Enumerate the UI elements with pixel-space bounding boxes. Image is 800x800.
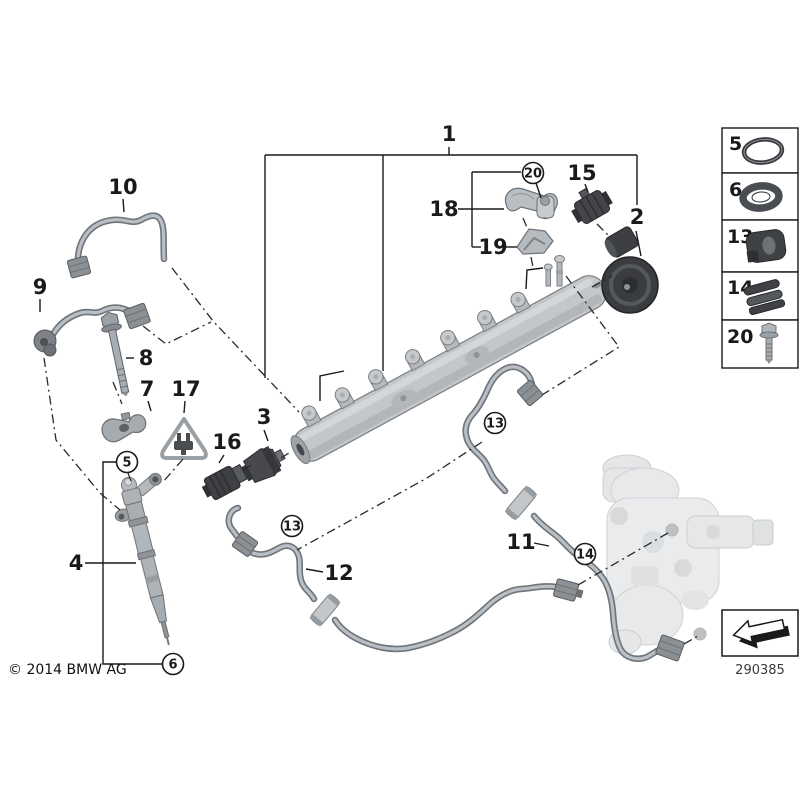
callout-13-circled-left[interactable]: 13: [282, 516, 303, 537]
warning-triangle-17: [162, 419, 206, 458]
callout-6-circled[interactable]: 6: [163, 654, 184, 675]
svg-text:13: 13: [486, 417, 504, 432]
legend-number-20: 20: [727, 326, 753, 348]
pressure-pipe-10: [67, 216, 164, 279]
callout-15[interactable]: 15: [567, 161, 596, 185]
pressure-pipe-9: [34, 303, 151, 356]
legend-number-5: 5: [729, 133, 742, 155]
callout-10[interactable]: 10: [108, 175, 137, 199]
callout-9[interactable]: 9: [33, 275, 48, 299]
pump-lower-port: [694, 628, 706, 640]
svg-text:14: 14: [576, 548, 594, 563]
clamp-screw-20: [541, 197, 550, 206]
view-direction-box: [722, 610, 798, 656]
callout-1[interactable]: 1: [442, 122, 457, 146]
legend-sidebar: 5 6 13 14: [722, 128, 798, 368]
legend-item-14[interactable]: 14: [722, 272, 798, 320]
diagram-code: 290385: [735, 663, 785, 678]
clamp-19: [517, 229, 553, 254]
callout-18[interactable]: 18: [429, 197, 458, 221]
svg-text:13: 13: [283, 520, 301, 535]
callout-17[interactable]: 17: [171, 377, 200, 401]
sensor-3: [238, 441, 290, 488]
pipe-11-nut-upper: [517, 380, 544, 407]
fuel-rail: [278, 254, 612, 468]
rail-pressure-sensor: [565, 181, 615, 228]
callout-4[interactable]: 4: [69, 551, 84, 575]
parts-diagram-page: 1 2 3 4 7 8 9 10 11 12 15 16 17 18 19 5 …: [0, 0, 800, 800]
callout-19[interactable]: 19: [478, 235, 507, 259]
copyright-text: © 2014 BMW AG: [8, 662, 127, 678]
rail-outlet-nipples: [544, 256, 564, 287]
legend-item-13[interactable]: 13: [722, 220, 798, 272]
svg-text:6: 6: [168, 658, 177, 673]
legend-item-6[interactable]: 6: [722, 173, 798, 220]
callout-20-circled[interactable]: 20: [523, 163, 544, 184]
callout-7[interactable]: 7: [140, 377, 155, 401]
callout-13-circled-right[interactable]: 13: [485, 413, 506, 434]
callout-5-circled[interactable]: 5: [117, 452, 138, 473]
clamp-18: [505, 188, 557, 218]
callout-16[interactable]: 16: [212, 430, 241, 454]
legend-item-20[interactable]: 20: [722, 320, 798, 368]
callout-14-circled[interactable]: 14: [575, 544, 596, 565]
injector-clamp-7: [99, 409, 148, 443]
svg-text:5: 5: [122, 456, 131, 471]
svg-text:20: 20: [524, 167, 542, 182]
legend-item-5[interactable]: 5: [722, 128, 798, 173]
callout-12[interactable]: 12: [324, 561, 353, 585]
fuel-injector: [107, 470, 201, 650]
parts-diagram-canvas: 1 2 3 4 7 8 9 10 11 12 15 16 17 18 19 5 …: [0, 0, 800, 800]
pump-upper-port: [666, 524, 678, 536]
pipe-12-nut-end: [553, 578, 585, 603]
callout-2[interactable]: 2: [630, 205, 645, 229]
callout-11[interactable]: 11: [506, 530, 535, 554]
rubber-grommet-icon: [744, 229, 787, 264]
callout-8[interactable]: 8: [139, 346, 154, 370]
callout-3[interactable]: 3: [257, 405, 272, 429]
